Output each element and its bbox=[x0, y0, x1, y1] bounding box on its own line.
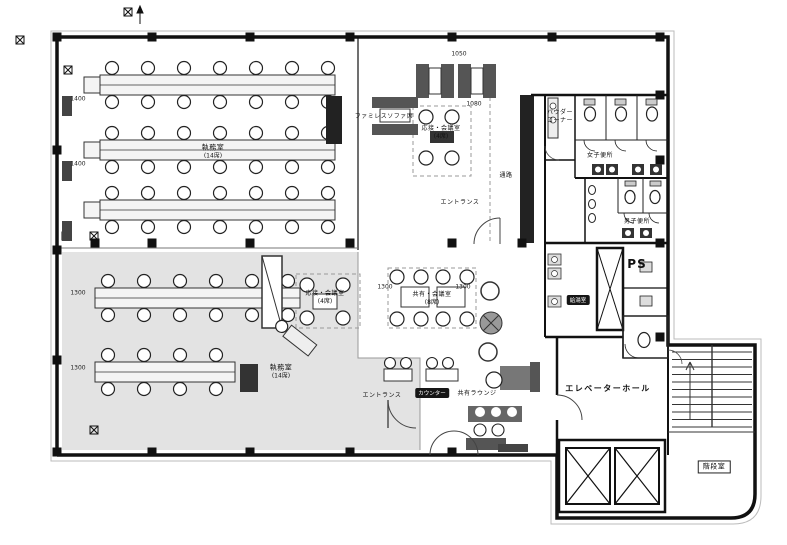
floor-plan-drawing bbox=[0, 0, 787, 545]
seat-count: (8席) bbox=[412, 299, 451, 307]
room-name: 応接・会議室 bbox=[305, 290, 344, 298]
stair-treads bbox=[668, 345, 755, 432]
dimension-label: 1050 bbox=[451, 51, 466, 58]
seat-count: (14席) bbox=[270, 373, 293, 381]
pipe-shaft bbox=[597, 248, 623, 330]
label-meeting-shared: 共有・会議室 (8席) bbox=[412, 291, 451, 307]
room-name: 執務室 bbox=[270, 364, 293, 373]
north-arrow-icon bbox=[137, 6, 143, 24]
copier-upper bbox=[326, 96, 342, 144]
dimension-label: 1080 bbox=[466, 101, 481, 108]
seat-count: (4席) bbox=[421, 133, 460, 141]
label-family-sofa: ファミレスソファ席 bbox=[355, 113, 414, 121]
label-powder-corner: パウダー コーナー bbox=[547, 109, 573, 125]
label-stair-room: 階段室 bbox=[698, 460, 731, 473]
label-wc-men: 男子便所 bbox=[624, 218, 650, 226]
wall-cabinets bbox=[62, 96, 72, 241]
floor-plan: 執務室 (14席) 執務室 (14席) ファミレスソファ席 応接・会議室 (4席… bbox=[0, 0, 787, 545]
label-meeting-upper: 応接・会議室 (4席) bbox=[421, 125, 460, 141]
dimension-label: 1400 bbox=[70, 96, 85, 103]
room-name: 応接・会議室 bbox=[421, 125, 460, 133]
label-entrance-lower: エントランス bbox=[363, 392, 402, 400]
label-counter: カウンター bbox=[415, 388, 449, 398]
mens-toilet-fixtures bbox=[589, 178, 669, 238]
label-pipe-shaft: PS bbox=[627, 257, 646, 273]
shaded-open-office-zone bbox=[62, 252, 420, 450]
dimension-label: 1300 bbox=[377, 284, 392, 291]
room-name: パウダー bbox=[547, 109, 573, 117]
label-lounge: 共有ラウンジ bbox=[457, 390, 496, 398]
accessible-wc bbox=[623, 262, 668, 358]
room-name: 執務室 bbox=[202, 144, 225, 153]
label-corridor: 通路 bbox=[499, 172, 512, 180]
dimension-label: 1300 bbox=[455, 284, 470, 291]
dimension-label: 1300 bbox=[70, 365, 85, 372]
label-entrance-upper: エントランス bbox=[441, 199, 480, 207]
room-name: 共有・会議室 bbox=[412, 291, 451, 299]
seat-count: (14席) bbox=[202, 153, 225, 161]
dimension-label: 1300 bbox=[70, 290, 85, 297]
elevator-shafts bbox=[559, 440, 665, 512]
copier-lower bbox=[240, 364, 258, 392]
label-wc-women: 女子便所 bbox=[587, 152, 613, 160]
label-elevator-hall: エレベーターホール bbox=[565, 384, 651, 394]
powder-corner-fixtures bbox=[545, 98, 559, 160]
seat-count: (4席) bbox=[305, 298, 344, 306]
kitchenette-fixtures bbox=[548, 254, 561, 307]
womens-toilet-fixtures bbox=[575, 95, 668, 175]
label-meeting-lower: 応接・会議室 (4席) bbox=[305, 290, 344, 306]
label-kitchenette: 給湯室 bbox=[567, 295, 590, 305]
label-office-upper: 執務室 (14席) bbox=[202, 144, 225, 161]
dimension-label: 1400 bbox=[70, 161, 85, 168]
planter-icons bbox=[479, 282, 502, 361]
label-office-lower: 執務室 (14席) bbox=[270, 364, 293, 381]
room-name: コーナー bbox=[547, 117, 573, 125]
sofa-booth-units bbox=[416, 64, 496, 98]
